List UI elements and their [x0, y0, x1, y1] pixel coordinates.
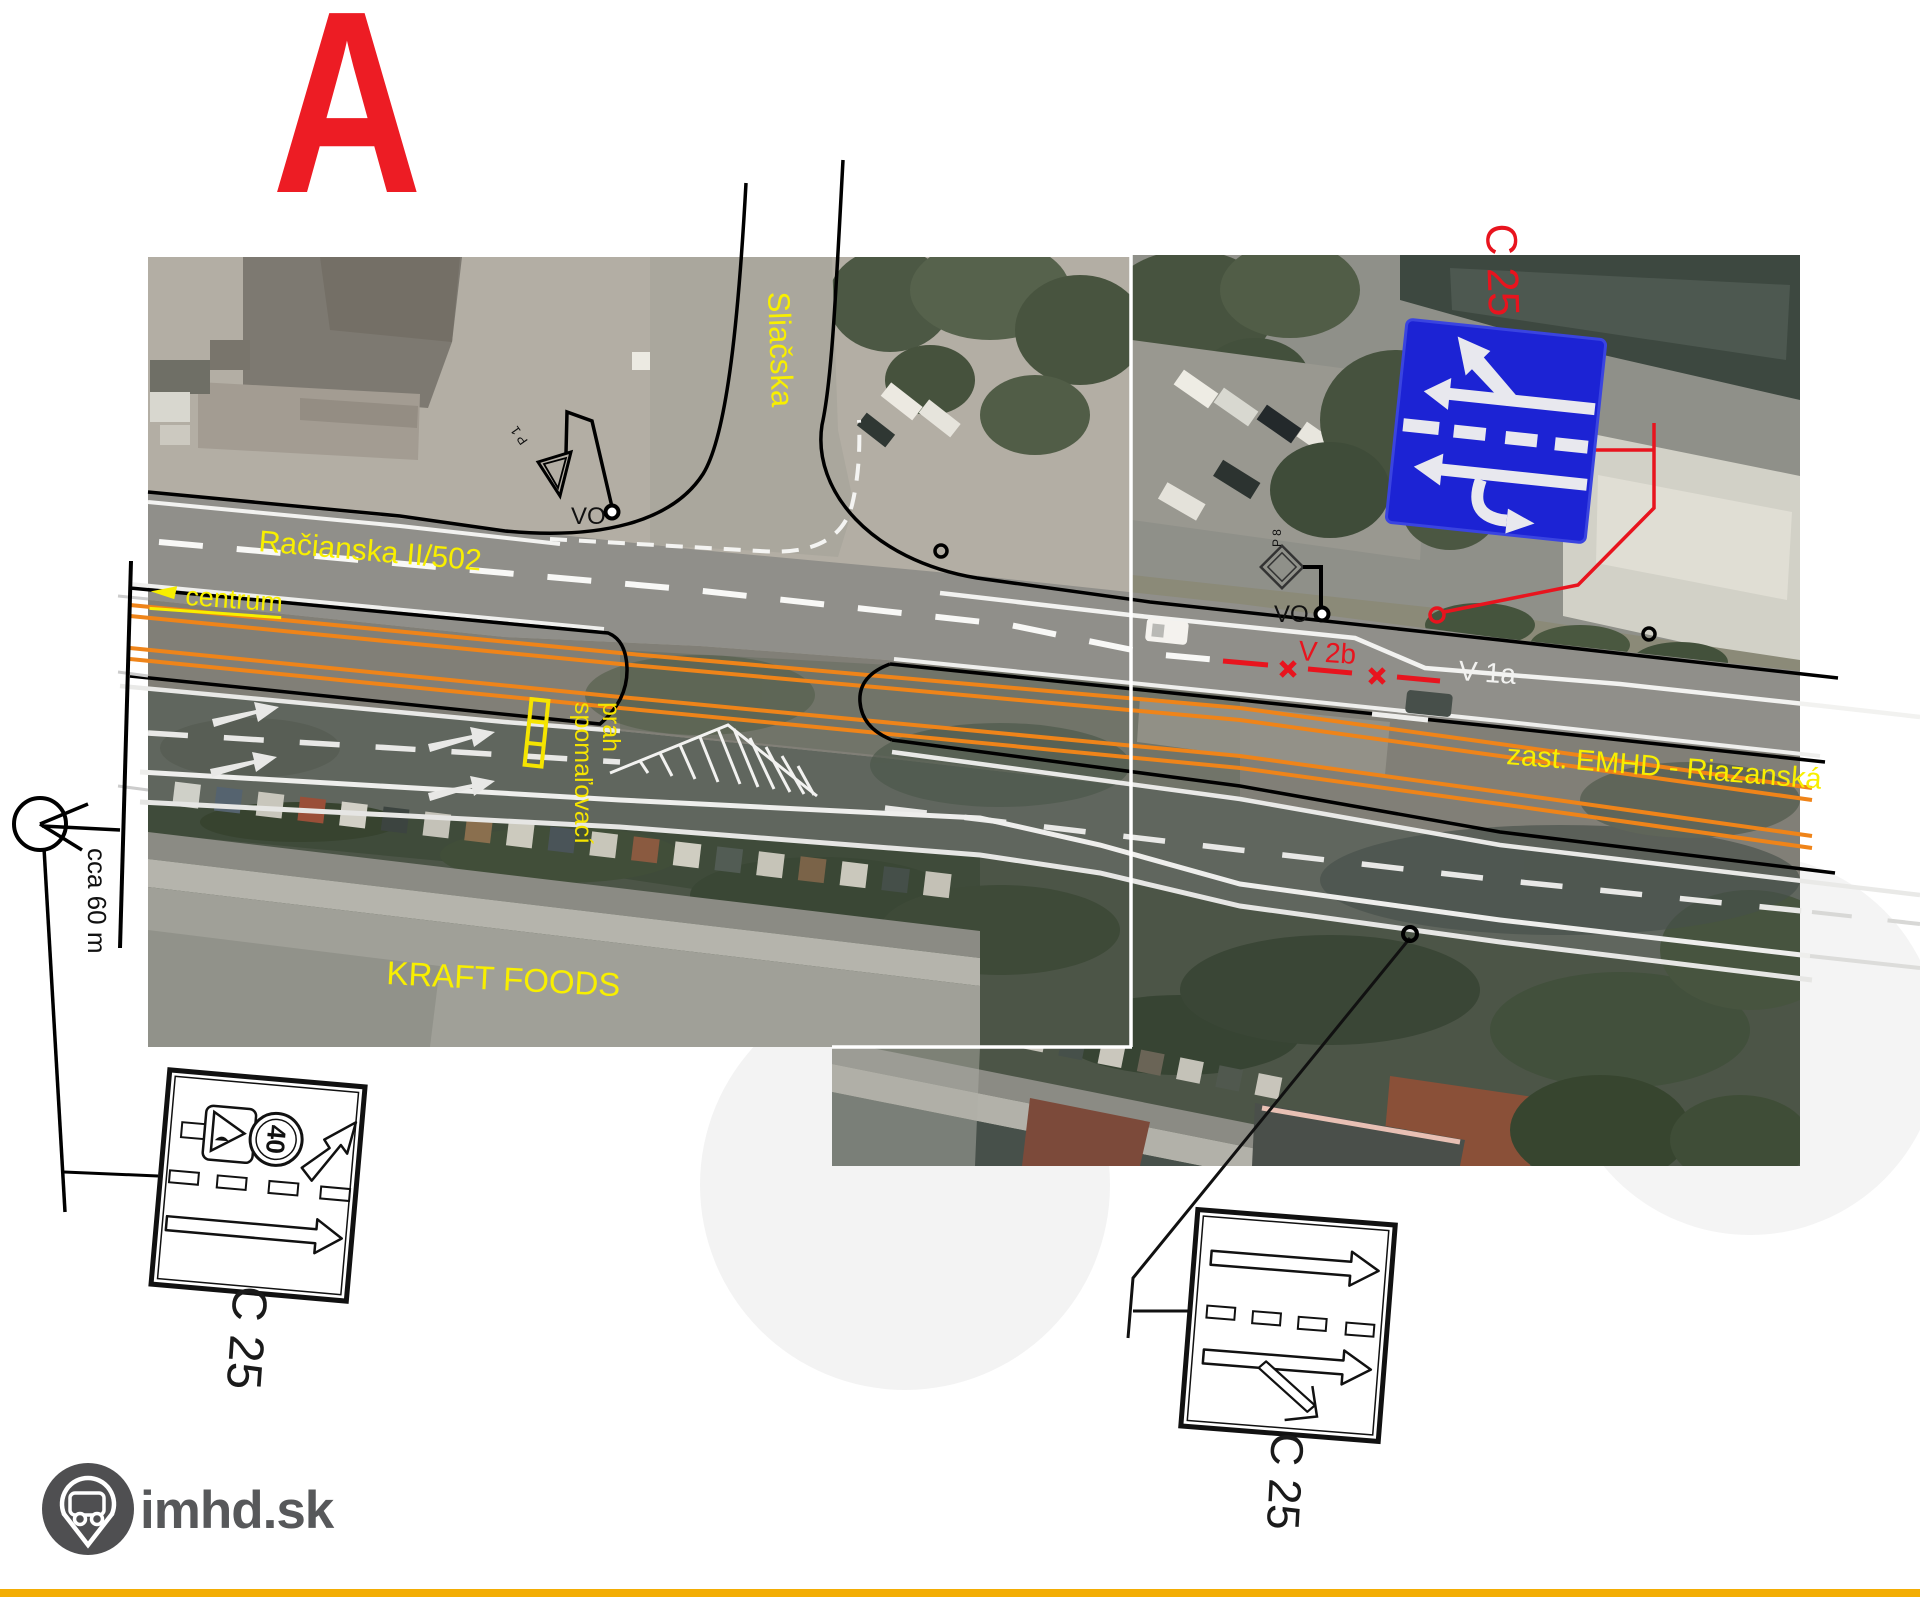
svg-text:A: A	[272, 0, 422, 247]
svg-text:VO: VO	[571, 503, 606, 530]
svg-text:prah: prah	[597, 702, 625, 752]
svg-text:C 25: C 25	[1257, 1431, 1314, 1531]
svg-text:P 8: P 8	[1270, 529, 1284, 547]
svg-text:V 1a: V 1a	[1458, 655, 1518, 690]
svg-text:cca 60 m: cca 60 m	[82, 848, 112, 954]
svg-text:C 25: C 25	[216, 1284, 277, 1391]
svg-text:VO: VO	[1274, 601, 1309, 628]
svg-text:C 25: C 25	[1476, 223, 1528, 318]
svg-text:imhd.sk: imhd.sk	[140, 1481, 335, 1540]
svg-text:V 2b: V 2b	[1298, 635, 1358, 670]
svg-text:Sliačska: Sliačska	[761, 291, 800, 408]
svg-text:40: 40	[260, 1124, 292, 1155]
svg-text:spomaľovací: spomaľovací	[569, 702, 597, 844]
